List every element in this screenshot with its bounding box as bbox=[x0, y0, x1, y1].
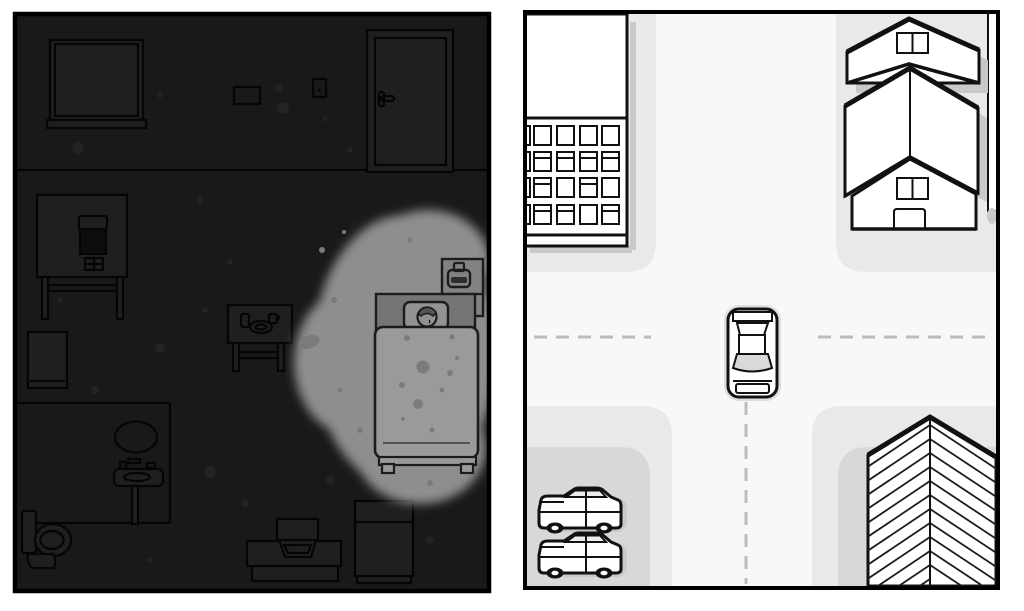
panel-street bbox=[513, 12, 1004, 611]
tv-back bbox=[277, 519, 318, 541]
table-leg bbox=[278, 343, 284, 371]
apartment-window-row bbox=[513, 205, 619, 224]
toilet-base bbox=[28, 554, 56, 568]
car-windshield bbox=[733, 354, 772, 372]
door[interactable] bbox=[367, 30, 453, 172]
game-scene bbox=[0, 0, 1024, 611]
desk-leg bbox=[117, 277, 123, 319]
fence-strip bbox=[987, 12, 997, 224]
driving-car[interactable] bbox=[724, 305, 781, 401]
bathroom-door[interactable] bbox=[28, 332, 67, 388]
television[interactable] bbox=[279, 540, 316, 557]
apartment-window-row bbox=[513, 178, 619, 197]
sink-pedestal bbox=[132, 486, 138, 524]
window-sill bbox=[47, 120, 146, 128]
apartment-window-row bbox=[513, 152, 619, 171]
bed-foot bbox=[461, 464, 473, 473]
apartment-roof-block bbox=[516, 14, 627, 118]
desk-leg bbox=[42, 277, 48, 319]
apartment-building bbox=[513, 14, 636, 253]
bed-foot bbox=[382, 464, 394, 473]
toilet-tank bbox=[22, 511, 36, 553]
sleeping-person[interactable] bbox=[418, 307, 437, 326]
cabinet-base bbox=[357, 576, 411, 583]
house-window bbox=[897, 178, 928, 199]
bed[interactable] bbox=[375, 294, 478, 473]
panel-bedroom bbox=[15, 14, 497, 591]
blanket bbox=[375, 327, 478, 458]
apartment-base bbox=[516, 235, 627, 246]
house-window bbox=[897, 33, 928, 53]
apartment-window-row bbox=[513, 126, 619, 145]
chevron-roof-building bbox=[860, 417, 1004, 611]
tv-stand-base bbox=[252, 566, 338, 581]
monitor-screen bbox=[80, 229, 106, 254]
cabinet[interactable] bbox=[355, 501, 413, 583]
table-leg bbox=[233, 343, 239, 371]
window[interactable] bbox=[47, 40, 146, 128]
